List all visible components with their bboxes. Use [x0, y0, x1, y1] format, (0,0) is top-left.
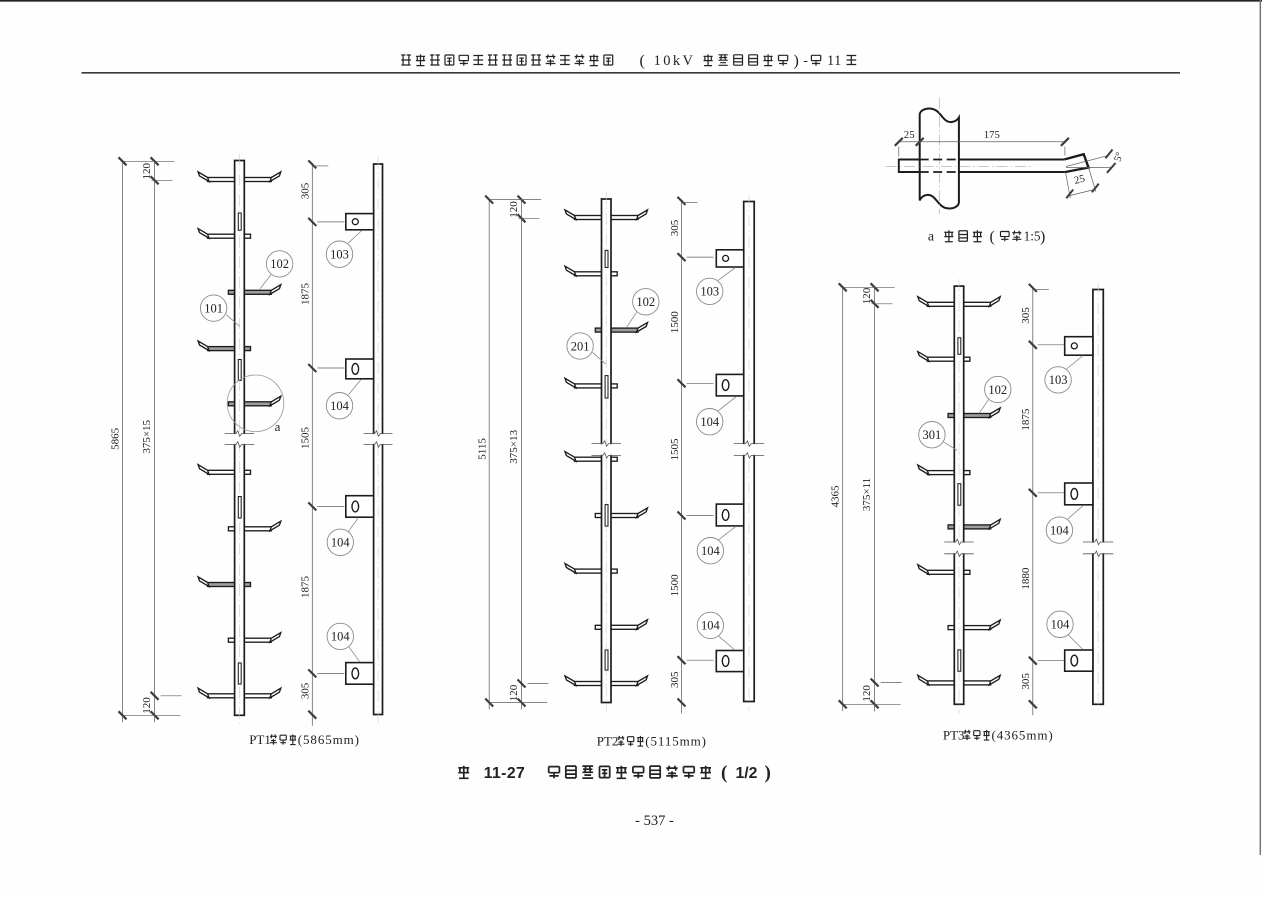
svg-text:305: 305 [300, 182, 312, 199]
svg-text:104: 104 [1051, 618, 1071, 632]
svg-text:1875: 1875 [1020, 408, 1032, 431]
svg-text:11: 11 [827, 53, 842, 69]
svg-text:10kV: 10kV [654, 53, 696, 69]
svg-text:1500: 1500 [669, 311, 681, 334]
svg-text:104: 104 [331, 630, 351, 644]
svg-text:301: 301 [923, 428, 942, 442]
svg-text:201: 201 [571, 339, 590, 353]
svg-text:1500: 1500 [669, 574, 681, 597]
svg-text:375×15: 375×15 [141, 419, 153, 453]
svg-text:5865: 5865 [110, 427, 122, 450]
svg-text:): ) [765, 763, 771, 784]
svg-text:102: 102 [988, 383, 1007, 397]
svg-text:(5115mm): (5115mm) [645, 734, 707, 749]
svg-text:PT3: PT3 [943, 728, 965, 743]
svg-text:1:5: 1:5 [1024, 229, 1041, 244]
svg-text:): ) [794, 53, 799, 70]
svg-text:305: 305 [669, 219, 681, 236]
svg-text:- 537 -: - 537 - [635, 813, 674, 829]
svg-text:104: 104 [1050, 523, 1070, 537]
svg-text:120: 120 [141, 163, 153, 180]
svg-text:102: 102 [636, 295, 655, 309]
svg-text:5115: 5115 [476, 438, 488, 460]
svg-text:25: 25 [904, 129, 915, 141]
svg-text:11-27: 11-27 [484, 765, 526, 782]
svg-text:104: 104 [331, 536, 351, 550]
svg-text:103: 103 [1049, 373, 1068, 387]
svg-text:PT2: PT2 [597, 734, 619, 749]
svg-text:a: a [928, 230, 935, 245]
svg-text:-: - [803, 54, 808, 69]
svg-text:1880: 1880 [1020, 567, 1032, 590]
svg-text:305: 305 [669, 671, 681, 688]
svg-text:(5865mm): (5865mm) [298, 732, 360, 747]
svg-text:(: ( [721, 763, 727, 784]
svg-text:4365: 4365 [830, 485, 842, 508]
svg-text:375×11: 375×11 [861, 478, 873, 511]
svg-text:1875: 1875 [300, 576, 312, 599]
svg-text:a: a [275, 419, 281, 434]
svg-text:120: 120 [861, 685, 873, 702]
svg-text:120: 120 [508, 201, 520, 218]
svg-text:104: 104 [700, 415, 720, 429]
svg-text:104: 104 [701, 619, 721, 633]
svg-text:305: 305 [300, 682, 312, 699]
svg-text:1/2: 1/2 [736, 765, 758, 782]
svg-text:103: 103 [700, 285, 719, 299]
svg-text:102: 102 [270, 257, 289, 271]
svg-text:375×13: 375×13 [508, 430, 520, 464]
svg-text:120: 120 [508, 684, 520, 701]
svg-text:305: 305 [1020, 673, 1032, 690]
svg-text:1875: 1875 [300, 283, 312, 306]
svg-text:120: 120 [141, 697, 153, 714]
svg-text:): ) [1040, 229, 1045, 246]
svg-text:305: 305 [1020, 307, 1032, 324]
svg-text:1505: 1505 [669, 438, 681, 461]
svg-text:(4365mm): (4365mm) [992, 728, 1054, 743]
svg-text:1505: 1505 [300, 427, 312, 450]
svg-text:(: ( [640, 53, 645, 70]
svg-text:175: 175 [984, 129, 1000, 141]
svg-text:PT1: PT1 [249, 732, 271, 747]
svg-text:103: 103 [330, 248, 349, 262]
svg-text:(: ( [990, 229, 995, 246]
svg-text:101: 101 [204, 301, 223, 315]
svg-text:120: 120 [861, 287, 873, 304]
svg-text:104: 104 [701, 544, 721, 558]
svg-text:104: 104 [330, 399, 350, 413]
